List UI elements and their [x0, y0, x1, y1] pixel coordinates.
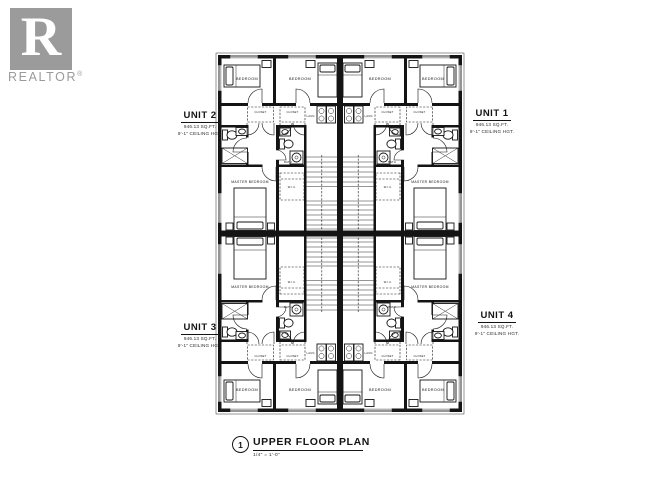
room-label-wic: W.I.C.: [288, 185, 297, 189]
room-label-bath: BATH: [284, 305, 292, 309]
unit-3-name: UNIT 3: [181, 322, 218, 335]
unit-1-quadrant: [340, 55, 462, 234]
room-label-bedroom: BEDROOM: [422, 388, 444, 392]
room-label-master-bedroom: MASTER BEDROOM: [411, 285, 449, 289]
room-label-wic: W.I.C.: [288, 280, 297, 284]
room-label-laundry: LAUN.: [365, 351, 374, 355]
floor-plan-sheet: { "logo": { "letter": "R", "wordmark": "…: [0, 0, 665, 478]
unit-4-quadrant: [340, 234, 462, 413]
drawing-number: 1: [238, 440, 243, 450]
unit-4-ceiling: 9'-1" CEILING HGT.: [452, 331, 542, 337]
room-label-closet: CLOSET: [382, 110, 394, 114]
room-label-master-bedroom: MASTER BEDROOM: [411, 180, 449, 184]
drawing-number-bubble: 1: [232, 436, 249, 453]
room-label-closet: CLOSET: [287, 354, 299, 358]
room-label-closet: CLOSET: [255, 110, 267, 114]
room-label-bath: BATH: [388, 305, 396, 309]
room-label-wic: W.I.C.: [384, 280, 393, 284]
room-label-laundry: LAUN.: [365, 114, 374, 118]
unit-3-quadrant: [218, 234, 340, 413]
unit-1-name: UNIT 1: [473, 108, 510, 121]
drawing-title: UPPER FLOOR PLAN: [253, 436, 363, 451]
drawing-scale: 1/4" = 1'-0": [253, 453, 363, 458]
room-label-bedroom: BEDROOM: [289, 77, 311, 81]
unit-4-area: 946.13 SQ.FT.: [452, 324, 542, 330]
registered-trademark-symbol: ®: [77, 71, 82, 78]
room-label-bath: BATH: [388, 160, 396, 164]
room-label-bedroom: BEDROOM: [236, 77, 258, 81]
room-label-laundry: LAUN.: [307, 351, 316, 355]
room-label-closet: CLOSET: [382, 354, 394, 358]
room-label-bath: BATH: [284, 160, 292, 164]
room-label-wic: W.I.C.: [384, 185, 393, 189]
realtor-logo: R: [10, 8, 72, 70]
room-label-closet: CLOSET: [414, 354, 426, 358]
room-label-bedroom: BEDROOM: [422, 77, 444, 81]
realtor-wordmark: REALTOR®: [8, 70, 82, 84]
room-label-closet: CLOSET: [414, 110, 426, 114]
room-label-master-bedroom: MASTER BEDROOM: [231, 180, 269, 184]
unit-2-name: UNIT 2: [181, 110, 218, 123]
unit-4-name: UNIT 4: [478, 310, 515, 323]
room-label-laundry: LAUN.: [307, 114, 316, 118]
room-label-bedroom: BEDROOM: [369, 77, 391, 81]
room-label-closet: CLOSET: [287, 110, 299, 114]
unit-4-callout: UNIT 4 946.13 SQ.FT. 9'-1" CEILING HGT.: [452, 305, 542, 336]
realtor-wordmark-text: REALTOR: [8, 70, 77, 84]
room-label-bedroom: BEDROOM: [289, 388, 311, 392]
room-label-bedroom: BEDROOM: [236, 388, 258, 392]
room-label-bedroom: BEDROOM: [369, 388, 391, 392]
drawing-title-block: UPPER FLOOR PLAN 1/4" = 1'-0": [253, 436, 363, 458]
room-label-master-bedroom: MASTER BEDROOM: [231, 285, 269, 289]
floor-plan-drawing: BEDROOM BEDROOM BEDROOM BEDROOM BEDROOM …: [215, 52, 465, 415]
room-label-closet: CLOSET: [255, 354, 267, 358]
realtor-logo-r-icon: R: [21, 9, 61, 65]
unit-2-quadrant: [218, 55, 340, 234]
